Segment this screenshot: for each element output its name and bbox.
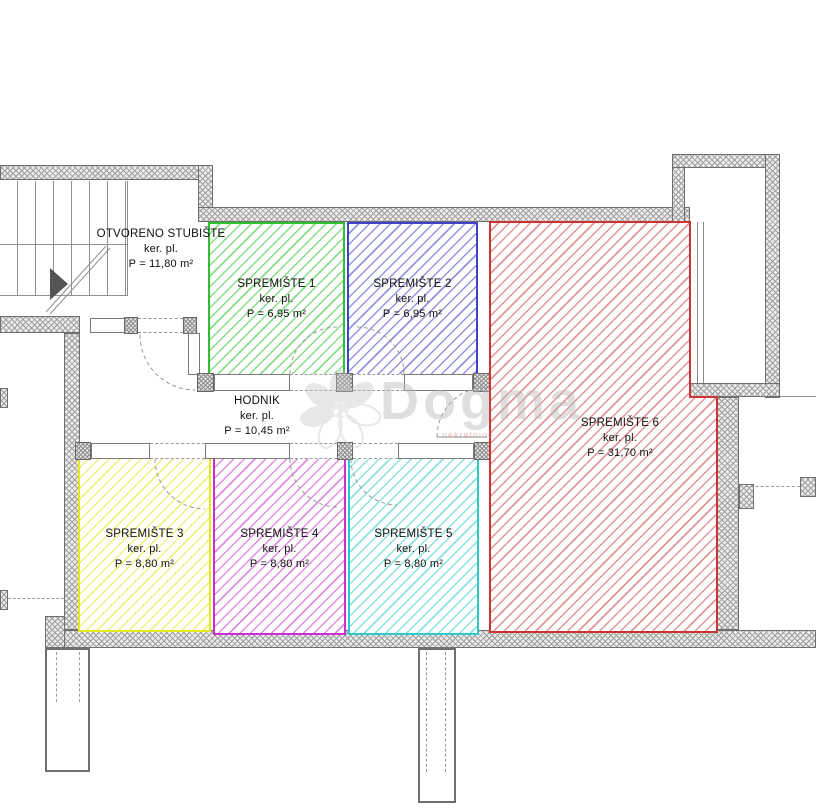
room-name: SPREMIŠTE 5	[348, 526, 479, 542]
watermark-subtext: nekretnine	[442, 430, 494, 440]
room-area: P = 6,95 m²	[347, 307, 478, 322]
label-spremiste-4: SPREMIŠTE 4 ker. pl. P = 8,80 m²	[213, 526, 346, 573]
room-finish: ker. pl.	[93, 242, 229, 257]
door-jamb	[75, 442, 91, 460]
room-finish: ker. pl.	[347, 292, 478, 307]
label-otvoreno-stubiste: OTVORENO STUBIŠTE ker. pl. P = 11,80 m²	[93, 226, 229, 273]
wall-right-edge-block	[800, 477, 816, 497]
door-jamb	[337, 442, 353, 460]
room-name: SPREMIŠTE 6	[530, 415, 710, 431]
door-jamb	[197, 373, 214, 392]
room-area: P = 31,70 m²	[530, 446, 710, 461]
room-area: P = 8,80 m²	[348, 557, 479, 572]
room-area: P = 8,80 m²	[213, 557, 346, 572]
room-name: HODNIK	[182, 393, 332, 409]
wall-shaft-bottom	[690, 383, 780, 397]
room-finish: ker. pl.	[213, 542, 346, 557]
partition-stair	[90, 318, 126, 333]
door-jamb	[124, 317, 138, 334]
door-opening-room4	[290, 443, 337, 459]
partition-room3a	[91, 443, 150, 459]
room-finish: ker. pl.	[530, 431, 710, 446]
label-spremiste-1: SPREMIŠTE 1 ker. pl. P = 6,95 m²	[208, 276, 345, 323]
wall-right-bump	[739, 484, 754, 509]
door-opening-stair	[138, 318, 183, 333]
room-finish: ker. pl.	[208, 292, 345, 307]
wall-shaft-top	[672, 154, 780, 168]
shaft-window	[697, 222, 704, 383]
door-jamb	[336, 373, 353, 392]
door-jamb	[183, 317, 197, 334]
room-area: P = 8,80 m²	[78, 557, 211, 572]
wall-top-main	[198, 207, 690, 222]
wall-edge-block-2	[0, 590, 8, 610]
room-name: SPREMIŠTE 1	[208, 276, 345, 292]
label-spremiste-3: SPREMIŠTE 3 ker. pl. P = 8,80 m²	[78, 526, 211, 573]
partition-room5	[398, 443, 474, 459]
wall-edge-block-1	[0, 388, 8, 408]
door-arc-stair	[140, 335, 195, 390]
dashed-line-left	[8, 598, 64, 599]
partition-stub	[188, 333, 200, 375]
dashed-line-right	[745, 486, 800, 487]
room-name: SPREMIŠTE 2	[347, 276, 478, 292]
wall-left-horizontal	[0, 316, 80, 333]
shaft-left-dashes	[56, 652, 80, 702]
room-area: P = 11,80 m²	[93, 257, 229, 272]
room-name: SPREMIŠTE 4	[213, 526, 346, 542]
room-area: P = 6,95 m²	[208, 307, 345, 322]
partition-room2	[404, 374, 473, 391]
door-opening-room2	[353, 374, 404, 391]
room-name: SPREMIŠTE 3	[78, 526, 211, 542]
wall-top-left	[0, 165, 213, 180]
door-jamb	[474, 442, 490, 460]
room-finish: ker. pl.	[182, 409, 332, 424]
room-area: P = 10,45 m²	[182, 424, 332, 439]
label-spremiste-5: SPREMIŠTE 5 ker. pl. P = 8,80 m²	[348, 526, 479, 573]
partition-room3b	[205, 443, 290, 459]
thin-line-right	[780, 396, 816, 397]
door-jamb	[473, 373, 490, 392]
partition-room1	[214, 374, 290, 391]
wall-bottom-corner	[45, 616, 65, 648]
room-finish: ker. pl.	[78, 542, 211, 557]
door-arc-room6	[437, 387, 487, 437]
door-opening-room5	[353, 443, 398, 459]
wall-shaft-right	[765, 154, 780, 398]
wall-right	[716, 397, 739, 630]
label-spremiste-2: SPREMIŠTE 2 ker. pl. P = 6,95 m²	[347, 276, 478, 323]
label-spremiste-6: SPREMIŠTE 6 ker. pl. P = 31,70 m²	[530, 415, 710, 462]
door-opening-room1	[290, 374, 337, 391]
label-hodnik: HODNIK ker. pl. P = 10,45 m²	[182, 393, 332, 440]
shaft-center-dashes	[426, 652, 446, 772]
floor-plan: OTVORENO STUBIŠTE ker. pl. P = 11,80 m² …	[0, 0, 816, 811]
room-name: OTVORENO STUBIŠTE	[93, 226, 229, 242]
room-finish: ker. pl.	[348, 542, 479, 557]
door-opening-room3	[150, 443, 205, 459]
